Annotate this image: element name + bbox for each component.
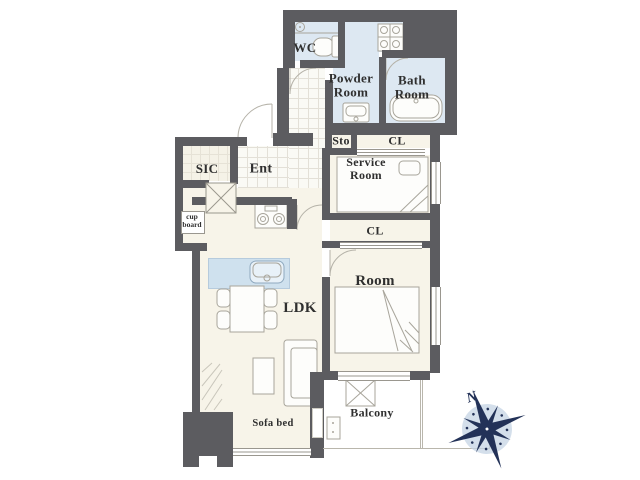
label-cl-upper: CL [388, 134, 405, 147]
label-service-room: ServiceRoom [346, 156, 385, 182]
pillar-x-icon [0, 0, 640, 480]
label-sofa-bed: Sofa bed [252, 418, 293, 430]
compass-rose-icon [443, 384, 538, 479]
label-wc: WC [294, 41, 317, 55]
label-ent: Ent [250, 161, 273, 176]
floor-plan: WC PowderRoom BathRoom Sto CL ServiceRoo… [0, 0, 640, 480]
label-room: Room [355, 273, 395, 290]
label-powder-room: PowderRoom [329, 72, 373, 101]
label-cupboard: cupboard [182, 213, 201, 230]
label-ldk: LDK [283, 300, 316, 317]
label-sic: SIC [196, 162, 219, 176]
label-sto: Sto [332, 134, 350, 147]
label-cl-mid: CL [366, 224, 383, 237]
label-bath-room: BathRoom [395, 74, 429, 103]
label-balcony: Balcony [350, 406, 393, 419]
